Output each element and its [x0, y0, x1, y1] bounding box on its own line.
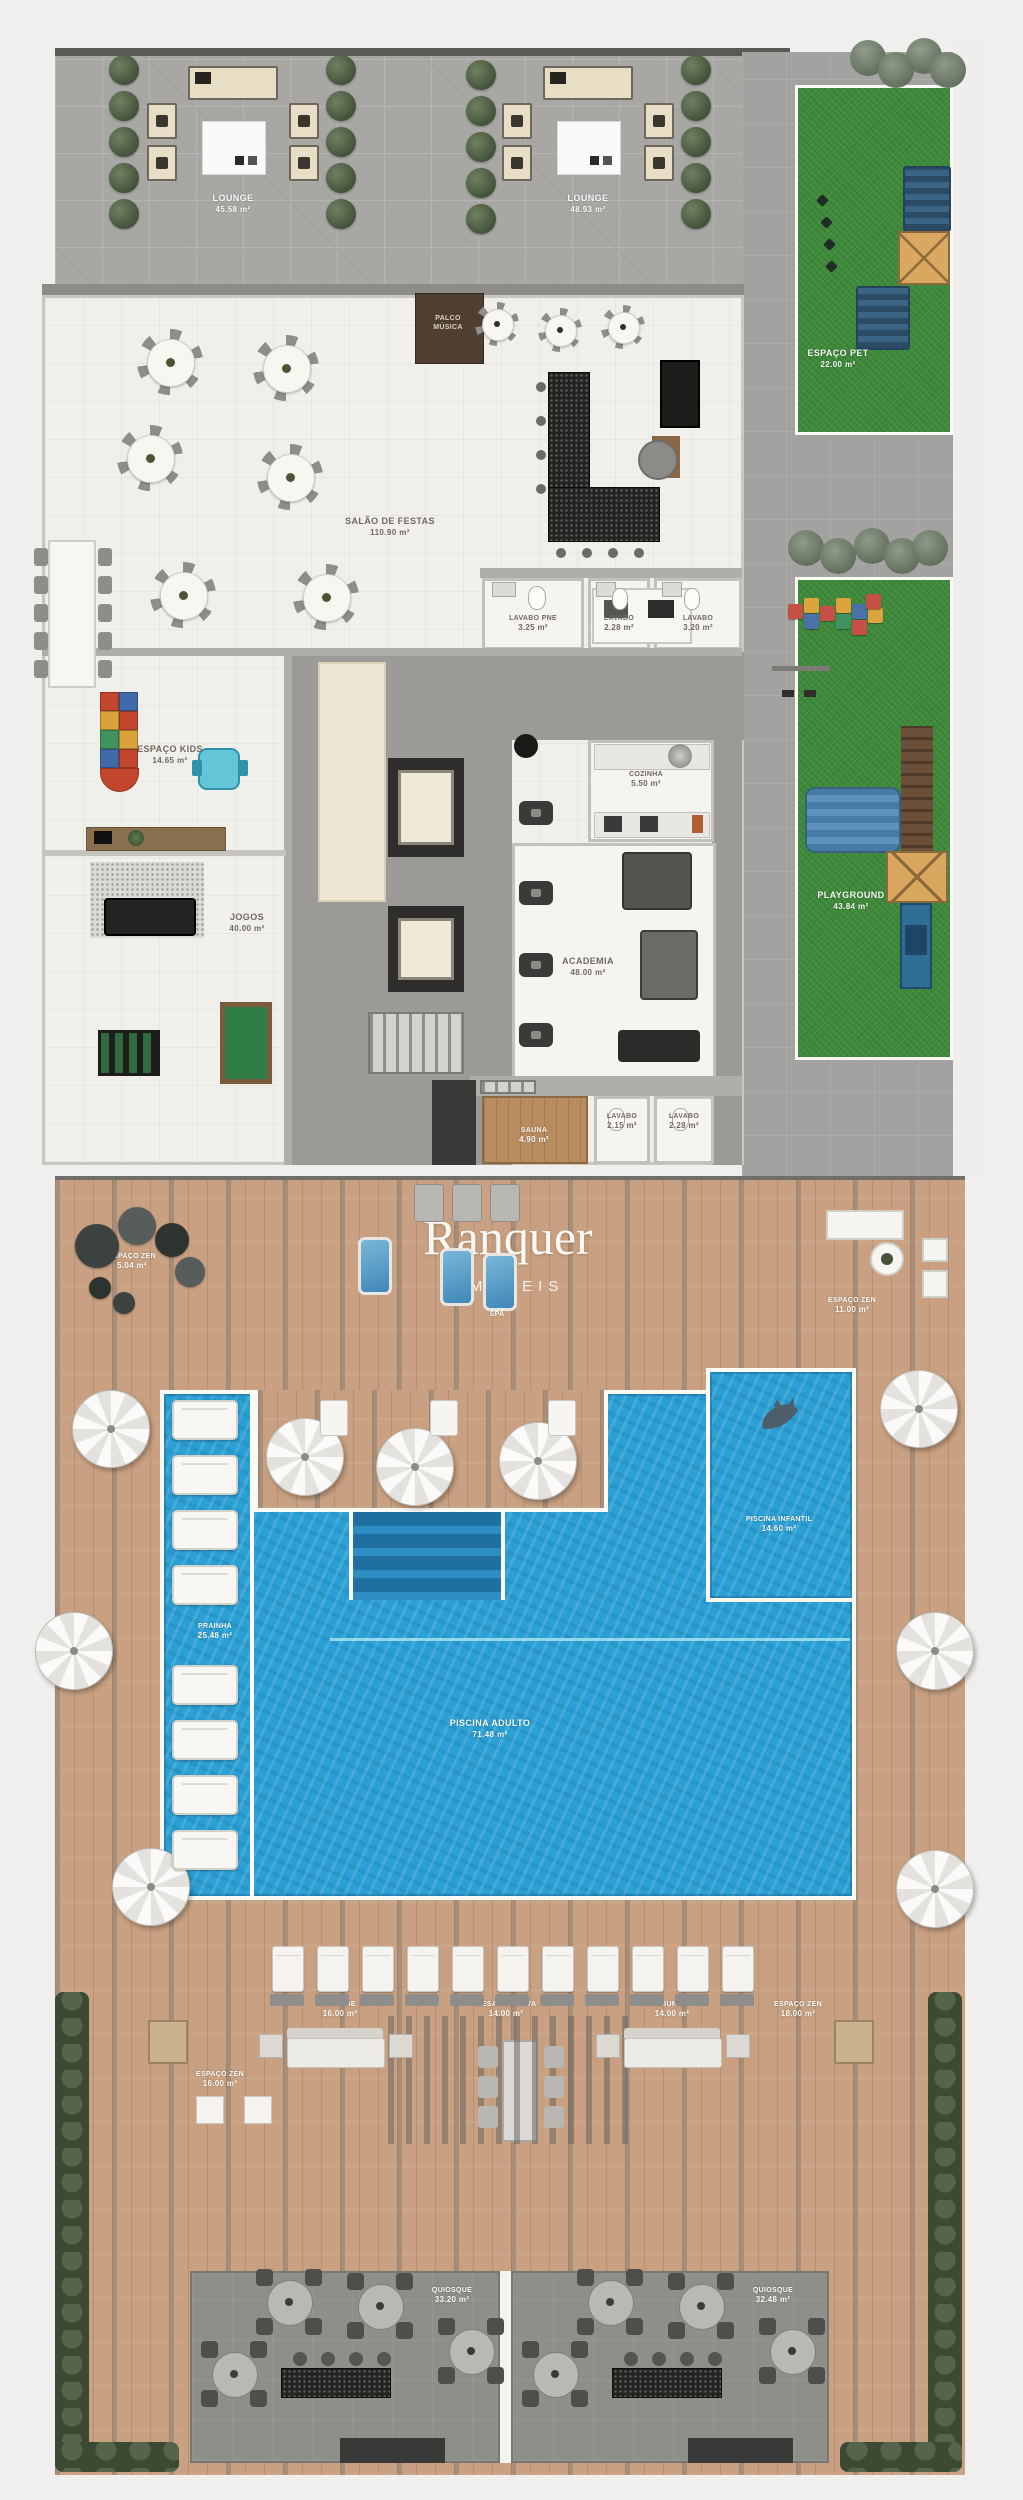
- label-espaco-kids: ESPAÇO KIDS14.65 m²: [137, 744, 203, 766]
- deck-chair: [430, 1400, 458, 1436]
- chair: [626, 2318, 643, 2335]
- chair: [808, 2367, 825, 2384]
- chair: [347, 2273, 364, 2290]
- gym-treadmill: [618, 1030, 700, 1062]
- pool-umbrella: [72, 1390, 150, 1468]
- communal-chair: [478, 2046, 498, 2068]
- sun-lounger: [452, 1946, 484, 1992]
- play-barrel: [805, 787, 901, 853]
- table-centerpiece: [467, 2347, 475, 2355]
- label-lavabo-pne: LAVABO PNE3.25 m²: [509, 614, 557, 633]
- shower-dark: [432, 1080, 476, 1165]
- hopscotch-cell: [119, 730, 138, 749]
- chair: [201, 2341, 218, 2358]
- dining-table: [117, 425, 183, 491]
- chair: [438, 2318, 455, 2335]
- hedge-bush: [466, 204, 496, 234]
- kitchen-item-2: [640, 816, 658, 832]
- elevator-1-cab: [398, 770, 454, 845]
- lounger-mat: [315, 1994, 349, 2006]
- playground-block: [804, 614, 819, 629]
- bar-stool: [536, 382, 546, 392]
- lounger-mat: [720, 1994, 754, 2006]
- lounger-mat: [450, 1994, 484, 2006]
- communal-chair: [478, 2076, 498, 2098]
- kids-right-wall: [284, 652, 292, 1165]
- table-centerpiece: [285, 2298, 293, 2306]
- hall-upper: [512, 652, 744, 740]
- spin-bike-seat: [531, 961, 541, 969]
- playground-block: [788, 604, 803, 619]
- toilet: [528, 586, 546, 610]
- table-centerpiece: [376, 2302, 384, 2310]
- label-lavabo-1: LAVABO2.28 m²: [604, 614, 634, 633]
- fridge: [660, 360, 700, 428]
- bar-stool: [634, 548, 644, 558]
- in-pool-lounger: [172, 1565, 238, 1605]
- chair: [717, 2273, 734, 2290]
- table-centerpiece: [557, 327, 563, 333]
- bar-stool: [536, 450, 546, 460]
- quiosque-table: [258, 2271, 320, 2333]
- deck-side-table: [259, 2034, 283, 2058]
- terrace-top-wall: [55, 48, 790, 56]
- tree: [820, 538, 856, 574]
- bar-stool: [556, 548, 566, 558]
- label-sauna: SAUNA4.90 m²: [519, 1126, 549, 1145]
- label-spa: SPA: [490, 1310, 505, 1319]
- playground-block: [836, 598, 851, 613]
- table-centerpiece: [788, 2347, 796, 2355]
- play-bridge: [901, 726, 933, 860]
- deck-sofa: [287, 2038, 385, 2068]
- in-pool-lounger: [172, 1720, 238, 1760]
- hopscotch-cell: [119, 711, 138, 730]
- games-sofa: [104, 898, 196, 936]
- elevator-2-cab: [398, 918, 454, 980]
- playground-block: [836, 614, 851, 629]
- lounge-rug: [557, 121, 621, 175]
- chair: [396, 2273, 413, 2290]
- round-service-table: [638, 440, 678, 480]
- bistro-table: [538, 308, 582, 352]
- bbq-sink-wall-2: [688, 2438, 793, 2463]
- hedge-bush: [109, 91, 139, 121]
- sink: [492, 582, 516, 597]
- zen-pouf: [118, 1207, 156, 1245]
- label-quiosque-2: QUIOSQUE32.48 m²: [753, 2286, 793, 2305]
- hedge-bush: [681, 127, 711, 157]
- label-palco-musica: PALCO MÚSICA: [420, 314, 476, 332]
- bar-stool: [536, 484, 546, 494]
- hedge-bush: [326, 199, 356, 229]
- chair: [305, 2318, 322, 2335]
- play-slide-mid: [905, 925, 927, 955]
- label-prainha: PRAINHA25.48 m²: [198, 1622, 232, 1641]
- kitchen-item-3: [692, 815, 703, 833]
- armchair-cushion: [156, 157, 168, 169]
- sun-lounger: [587, 1946, 619, 1992]
- hedge-bush: [466, 168, 496, 198]
- rug-item: [235, 156, 244, 165]
- spin-bike-seat: [531, 889, 541, 897]
- rug-item: [590, 156, 599, 165]
- armchair-cushion: [653, 115, 665, 127]
- spa-lounger: [414, 1184, 444, 1222]
- zen-pouf: [89, 1277, 111, 1299]
- kids-tv: [94, 831, 112, 844]
- sink: [662, 582, 682, 597]
- gym-machine-2: [640, 930, 698, 1000]
- hopscotch-cell: [100, 749, 119, 768]
- bbq-stool: [321, 2352, 335, 2366]
- hedge-bush: [109, 163, 139, 193]
- label-lavabo-3: LAVABO2.15 m²: [607, 1112, 637, 1131]
- hedge-bush: [466, 60, 496, 90]
- table-centerpiece: [230, 2370, 238, 2378]
- armchair-cushion: [298, 115, 310, 127]
- banquet-chair: [34, 632, 48, 650]
- pet-ramp-1: [903, 166, 951, 232]
- hopscotch-cell: [119, 749, 138, 768]
- pergola-slat: [586, 2016, 592, 2144]
- bbq-stool: [349, 2352, 363, 2366]
- chair: [571, 2390, 588, 2407]
- communal-chair: [478, 2106, 498, 2128]
- hopscotch-cell: [100, 730, 119, 749]
- swing-seat: [804, 690, 816, 697]
- spin-bike-seat: [531, 1031, 541, 1039]
- in-pool-lounger: [172, 1400, 238, 1440]
- zen-bench: [826, 1210, 904, 1240]
- sun-lounger: [272, 1946, 304, 1992]
- hedge-bottom-right: [840, 2442, 962, 2472]
- toilet: [684, 588, 700, 610]
- hedge-bush: [326, 55, 356, 85]
- label-espaco-pet: ESPAÇO PET22.00 m²: [807, 348, 868, 370]
- kids-table-chair: [238, 760, 248, 776]
- quiosque-table: [579, 2271, 641, 2333]
- tree: [788, 530, 824, 566]
- spa-tub: [358, 1237, 392, 1295]
- table-centerpiece: [166, 358, 175, 367]
- chair: [256, 2318, 273, 2335]
- pet-ramp-2: [856, 286, 910, 350]
- foosball-table: [98, 1030, 160, 1076]
- label-zen-3: ESPAÇO ZEN18.00 m²: [774, 2000, 822, 2019]
- deck-side-table: [596, 2034, 620, 2058]
- label-lavabo-4: LAVABO2.28 m²: [669, 1112, 699, 1131]
- kitchen-item-1: [604, 816, 622, 832]
- pool-umbrella: [896, 1850, 974, 1928]
- lounge-rug: [202, 121, 266, 175]
- table-centerpiece: [551, 2370, 559, 2378]
- rug-item: [603, 156, 612, 165]
- playground-block: [804, 598, 819, 613]
- in-pool-lounger: [172, 1830, 238, 1870]
- label-lounge-ne: LOUNGE48.93 m²: [568, 193, 609, 215]
- kids-table: [198, 748, 240, 790]
- right-border-band: [953, 40, 990, 1180]
- chair: [201, 2390, 218, 2407]
- bbq-stool: [680, 2352, 694, 2366]
- label-zen-2: ESPAÇO ZEN11.00 m²: [828, 1296, 876, 1315]
- quiosque-table: [203, 2343, 265, 2405]
- bar-stool: [608, 548, 618, 558]
- spa-tub: [483, 1253, 517, 1311]
- table-centerpiece: [322, 593, 331, 602]
- chair: [438, 2367, 455, 2384]
- zen-stool: [922, 1270, 948, 1298]
- hedge-bush: [109, 55, 139, 85]
- banquet-chair: [98, 576, 112, 594]
- chair: [668, 2273, 685, 2290]
- salao-bottom-wall: [42, 648, 742, 656]
- deck-cabinet: [148, 2020, 188, 2064]
- deck-side-table: [726, 2034, 750, 2058]
- floor-plan: Ranquer IMÓVEIS LOUNGE45.58 m² LOUNGE48.…: [0, 0, 1023, 2500]
- hedge-bush: [109, 199, 139, 229]
- spa-tub: [440, 1248, 474, 1306]
- chair: [759, 2318, 776, 2335]
- deck-edge-shadow: [55, 1176, 965, 1180]
- chair: [759, 2367, 776, 2384]
- label-jogos: JOGOS40.00 m²: [229, 912, 264, 934]
- lounger-mat: [495, 1994, 529, 2006]
- gym-machine-1: [622, 852, 692, 910]
- hedge-bottom-left: [55, 2442, 179, 2472]
- chair: [487, 2318, 504, 2335]
- quiosque-table: [440, 2320, 502, 2382]
- quiosque-table: [524, 2343, 586, 2405]
- label-cozinha: COZINHA5.50 m²: [629, 770, 663, 789]
- armchair-cushion: [653, 157, 665, 169]
- quiosque-table: [761, 2320, 823, 2382]
- zen-stool: [922, 1238, 948, 1262]
- bbq-stool: [293, 2352, 307, 2366]
- banquet-chair: [34, 576, 48, 594]
- chair: [305, 2269, 322, 2286]
- table-centerpiece: [179, 591, 188, 600]
- lounger-mat: [630, 1994, 664, 2006]
- banquet-chair: [98, 548, 112, 566]
- lounger-mat: [270, 1994, 304, 2006]
- chair: [347, 2322, 364, 2339]
- chair: [487, 2367, 504, 2384]
- in-pool-lounger: [172, 1510, 238, 1550]
- label-lavabo-2: LAVABO3.20 m²: [683, 614, 713, 633]
- chair: [668, 2322, 685, 2339]
- chair: [808, 2318, 825, 2335]
- sofa-pillow: [195, 72, 211, 84]
- quiosque-table: [670, 2275, 732, 2337]
- in-pool-lounger: [172, 1775, 238, 1815]
- pergola-slat: [424, 2016, 430, 2144]
- communal-chair: [544, 2106, 564, 2128]
- swing-bar: [772, 666, 830, 671]
- sun-lounger: [632, 1946, 664, 1992]
- kitchen-counter-top: [594, 744, 710, 770]
- kids-plant: [128, 830, 144, 846]
- zen-pouf: [75, 1224, 119, 1268]
- gym-ball: [514, 734, 538, 758]
- toilet: [612, 588, 628, 610]
- play-tower: [886, 851, 948, 903]
- zen-pouf: [113, 1292, 135, 1314]
- pool-umbrella: [896, 1612, 974, 1690]
- armchair-cushion: [511, 115, 523, 127]
- pool-table: [220, 1002, 272, 1084]
- lounger-mat: [585, 1994, 619, 2006]
- table-centerpiece: [282, 364, 291, 373]
- banquet-chair: [98, 660, 112, 678]
- pool-umbrella: [880, 1370, 958, 1448]
- tree: [930, 52, 966, 88]
- label-quiosque-1: QUIOSQUE33.20 m²: [432, 2286, 472, 2305]
- deck-cabinet: [834, 2020, 874, 2064]
- playground-block: [820, 606, 835, 621]
- staircase-lower: [480, 1080, 536, 1094]
- chair: [717, 2322, 734, 2339]
- label-zen-4: ESPAÇO ZEN16.00 m²: [196, 2070, 244, 2089]
- sun-lounger: [317, 1946, 349, 1992]
- chair: [522, 2341, 539, 2358]
- hedge-right: [928, 1992, 962, 2470]
- playground-block: [868, 608, 883, 623]
- kitchen-pot: [668, 744, 692, 768]
- bar-stool: [582, 548, 592, 558]
- spa-lounger: [452, 1184, 482, 1222]
- bbq-stool: [377, 2352, 391, 2366]
- armchair-cushion: [298, 157, 310, 169]
- bbq-sink-wall-1: [340, 2438, 445, 2463]
- bbq-stool: [652, 2352, 666, 2366]
- communal-chair: [544, 2046, 564, 2068]
- zen-chair: [196, 2096, 224, 2124]
- hedge-bush: [109, 127, 139, 157]
- banquet-chair: [98, 632, 112, 650]
- deck-sofa: [624, 2038, 722, 2068]
- dining-table: [293, 564, 359, 630]
- hopscotch-cell: [100, 692, 119, 711]
- table-centerpiece: [286, 473, 295, 482]
- staircase: [368, 1012, 464, 1074]
- hedge-bush: [466, 96, 496, 126]
- tree: [912, 530, 948, 566]
- armchair-cushion: [156, 115, 168, 127]
- bathroom-wall: [480, 568, 742, 578]
- hedge-left: [55, 1992, 89, 2470]
- table-centerpiece: [494, 321, 500, 327]
- hedge-bush: [681, 199, 711, 229]
- zen-table-plant: [881, 1253, 893, 1265]
- hedge-bush: [681, 55, 711, 85]
- bistro-table: [475, 302, 519, 346]
- zen-pouf: [155, 1223, 189, 1257]
- bbq-counter-1: [281, 2368, 391, 2398]
- sun-lounger: [722, 1946, 754, 1992]
- sun-lounger: [362, 1946, 394, 1992]
- lounger-mat: [360, 1994, 394, 2006]
- chair: [626, 2269, 643, 2286]
- pergola-slat: [460, 2016, 466, 2144]
- lounger-mat: [405, 1994, 439, 2006]
- zen-pouf: [175, 1257, 205, 1287]
- label-academia: ACADEMIA48.00 m²: [562, 956, 614, 978]
- table-centerpiece: [606, 2298, 614, 2306]
- bistro-table: [601, 305, 645, 349]
- hedge-bush: [681, 163, 711, 193]
- label-piscina-infantil: PISCINA INFANTIL14.60 m²: [746, 1515, 812, 1534]
- banquet-chair: [98, 604, 112, 622]
- chair: [396, 2322, 413, 2339]
- pergola-slat: [532, 2016, 538, 2144]
- playground-block: [852, 604, 867, 619]
- chair: [577, 2318, 594, 2335]
- chair: [256, 2269, 273, 2286]
- sun-lounger: [677, 1946, 709, 1992]
- spa-lounger: [490, 1184, 520, 1222]
- sun-lounger: [497, 1946, 529, 1992]
- lane-line: [330, 1638, 850, 1641]
- table-centerpiece: [697, 2302, 705, 2310]
- label-playground: PLAYGROUND43.84 m²: [817, 890, 884, 912]
- lounger-mat: [675, 1994, 709, 2006]
- dining-table: [137, 329, 203, 395]
- chair: [571, 2341, 588, 2358]
- armchair-cushion: [511, 157, 523, 169]
- banquet-chair: [34, 548, 48, 566]
- chair: [250, 2390, 267, 2407]
- bar-counter-horizontal: [548, 487, 660, 542]
- hedge-bush: [466, 132, 496, 162]
- label-lounge-nw: LOUNGE45.58 m²: [213, 193, 254, 215]
- rug-item: [248, 156, 257, 165]
- deck-side-table: [389, 2034, 413, 2058]
- table-centerpiece: [620, 324, 626, 330]
- sun-lounger: [407, 1946, 439, 1992]
- lounger-mat: [540, 1994, 574, 2006]
- dining-table: [253, 335, 319, 401]
- chair: [577, 2269, 594, 2286]
- banquet-chair: [34, 604, 48, 622]
- banquet-table: [48, 540, 96, 688]
- pergola-slat: [442, 2016, 448, 2144]
- zen-chair: [244, 2096, 272, 2124]
- hedge-bush: [326, 91, 356, 121]
- table-centerpiece: [146, 454, 155, 463]
- pool-umbrella: [35, 1612, 113, 1690]
- deck-chair: [548, 1400, 576, 1436]
- pool-steps: [349, 1512, 505, 1600]
- label-piscina-adulto: PISCINA ADULTO71.48 m²: [450, 1718, 531, 1740]
- deck-chair: [320, 1400, 348, 1436]
- hopscotch-cell: [119, 692, 138, 711]
- swing-seat: [782, 690, 794, 697]
- pet-tent: [898, 231, 950, 285]
- quiosque-table: [349, 2275, 411, 2337]
- playground-block: [852, 620, 867, 635]
- sofa-pillow: [550, 72, 566, 84]
- in-pool-lounger: [172, 1455, 238, 1495]
- dining-table: [150, 562, 216, 628]
- pergola-slat: [568, 2016, 574, 2144]
- label-salao-festas: SALÃO DE FESTAS110.90 m²: [345, 516, 435, 538]
- in-pool-lounger: [172, 1665, 238, 1705]
- playground-block: [866, 594, 881, 609]
- bar-stool: [536, 416, 546, 426]
- chair: [250, 2341, 267, 2358]
